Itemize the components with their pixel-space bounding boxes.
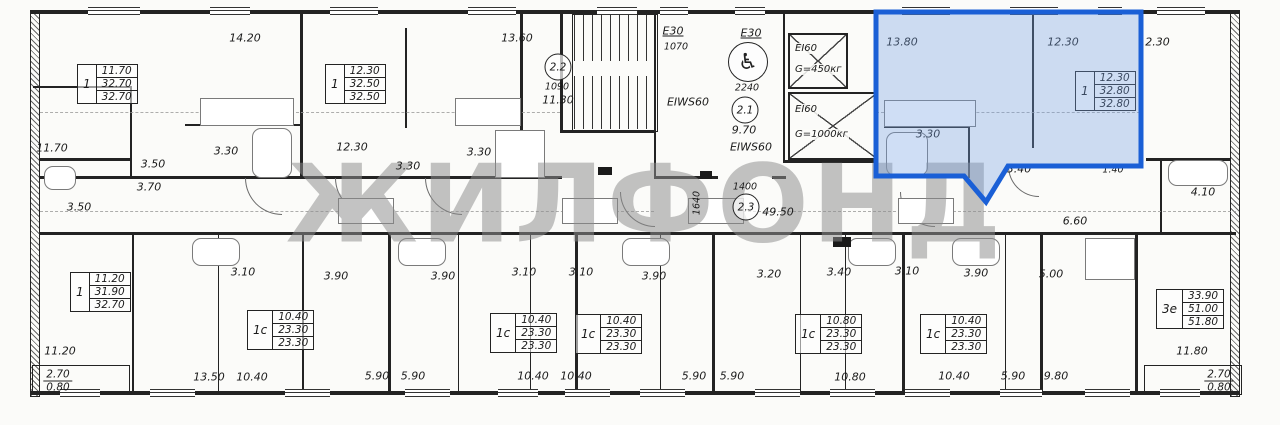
window-mark: [210, 7, 250, 15]
dim-label: 5.90: [682, 370, 707, 383]
unit-type: 1с: [921, 315, 946, 353]
unit-area-value: 10.80: [821, 315, 861, 327]
unit-areas: 10.4023.3023.30: [273, 311, 313, 349]
unit-area-value: 32.70: [90, 298, 130, 311]
unit-type: 3е: [1157, 290, 1183, 328]
kitchen-fixture: [1085, 238, 1135, 280]
dim-label: 10.40: [236, 371, 268, 384]
dim-label: 5.90: [401, 370, 426, 383]
door-rating-label: EIWS60: [730, 141, 772, 154]
unit-area-value: 23.30: [946, 340, 986, 353]
balcony-area-label: 2.700.80: [1204, 369, 1233, 394]
unit-info-box: 1с10.4023.3023.30: [247, 310, 314, 350]
door-rating-label: E30: [741, 27, 762, 40]
kitchen-fixture: [200, 98, 294, 126]
unit-area-value: 32.70: [97, 90, 137, 103]
stair-flight: [574, 15, 654, 61]
window-mark: [735, 7, 765, 15]
unit-area-value: 10.40: [601, 315, 641, 327]
elevator-rating: EI60: [794, 43, 818, 54]
room-area-label: 9.70: [732, 124, 757, 137]
section-marker: 2.1: [732, 97, 759, 124]
floor-plan: ЖИЛФОНД 14.2013.60109011.30E301070E30224…: [0, 0, 1280, 425]
unit-info-box: 1с10.4023.3023.30: [575, 314, 642, 354]
dim-label: 10.40: [560, 370, 592, 383]
balcony-area-top: 2.70: [43, 369, 72, 381]
dim-label: 3.90: [642, 270, 667, 283]
unit-area-value: 23.30: [273, 336, 313, 349]
balcony-area-label: 2.700.80: [43, 369, 72, 394]
unit-areas: 33.9051.0051.80: [1183, 290, 1223, 328]
window-mark: [640, 389, 685, 397]
dim-label: 3.90: [431, 270, 456, 283]
wall: [783, 13, 785, 163]
dim-label: 3.20: [757, 268, 782, 281]
wall: [30, 391, 1240, 395]
unit-area-value: 31.90: [90, 285, 130, 298]
dim-label: 3.50: [67, 201, 92, 214]
window-mark: [1000, 389, 1042, 397]
dim-label: 3.50: [141, 158, 166, 171]
door-arc: [245, 178, 282, 215]
window-mark: [88, 7, 140, 15]
unit-type: 1с: [576, 315, 601, 353]
unit-area-value: 10.40: [516, 314, 556, 326]
unit-areas: 11.7032.7032.70: [97, 65, 137, 103]
room-area-label: 49.50: [762, 206, 794, 219]
room-area-label: 11.80: [1176, 345, 1208, 358]
dim-label: 3.10: [895, 265, 920, 278]
dim-label: 3.30: [396, 160, 421, 173]
dim-label: 5.90: [720, 370, 745, 383]
window-mark: [1085, 389, 1130, 397]
unit-area-value: 51.80: [1183, 315, 1223, 328]
dim-label: 3.10: [512, 266, 537, 279]
unit-info-box: 111.2031.9032.70: [70, 272, 131, 312]
unit-area-value: 23.30: [821, 327, 861, 340]
unit-type: 1: [326, 65, 345, 103]
unit-type: 1: [78, 65, 97, 103]
wall: [132, 235, 134, 391]
unit-area-value: 32.50: [345, 90, 385, 103]
room-area-label: 11.70: [36, 142, 68, 155]
dim-label: 3.10: [569, 266, 594, 279]
window-mark: [565, 389, 610, 397]
kitchen-fixture: [455, 98, 521, 126]
wall: [1040, 235, 1043, 391]
outer-wall: [1230, 10, 1240, 397]
window-mark: [150, 389, 195, 397]
dim-label: 5.90: [365, 370, 390, 383]
window-mark: [1160, 389, 1200, 397]
bathtub-fixture: [44, 166, 76, 190]
dim-label: 3.90: [324, 270, 349, 283]
window-mark: [405, 389, 450, 397]
room-area-label: 11.20: [44, 345, 76, 358]
unit-area-value: 10.40: [273, 311, 313, 323]
unit-area-value: 12.30: [345, 65, 385, 77]
dim-label: 3.40: [827, 266, 852, 279]
balcony-area-bottom: 0.80: [43, 381, 72, 394]
unit-areas: 10.8023.3023.30: [821, 315, 861, 353]
window-mark: [468, 7, 516, 15]
unit-areas: 12.3032.5032.50: [345, 65, 385, 103]
unit-area-value: 23.30: [273, 323, 313, 336]
unit-info-box: 1с10.4023.3023.30: [490, 313, 557, 353]
elevator-shaft: EI60G=450кг: [788, 33, 848, 89]
unit-areas: 10.4023.3023.30: [516, 314, 556, 352]
unit-area-value: 33.90: [1183, 290, 1223, 302]
window-mark: [285, 389, 330, 397]
dim-label: 2240: [735, 83, 759, 94]
dim-label: 5.90: [1001, 370, 1026, 383]
dim-label: 10.80: [834, 371, 866, 384]
dim-label: 1090: [545, 82, 569, 93]
room-area-label: 6.60: [1063, 215, 1088, 228]
bathtub-fixture: [1168, 160, 1228, 186]
balcony-area-top: 2.70: [1204, 369, 1233, 381]
elevator-rating: EI60: [794, 104, 818, 115]
window-mark: [498, 389, 538, 397]
window-mark: [755, 389, 800, 397]
room-area-label: 14.20: [229, 32, 261, 45]
dim-label: 1400: [733, 182, 757, 193]
unit-area-value: 32.70: [97, 77, 137, 90]
unit-info-box: 111.7032.7032.70: [77, 64, 138, 104]
door-rating-label: E30: [663, 25, 684, 38]
unit-area-value: 32.50: [345, 77, 385, 90]
balcony-area-bottom: 0.80: [1204, 381, 1233, 394]
unit-area-value: 23.30: [821, 340, 861, 353]
unit-area-value: 11.20: [90, 273, 130, 285]
dim-label: 1070: [664, 42, 688, 53]
door-rating-label: EIWS60: [667, 96, 709, 109]
section-marker: 2.2: [545, 54, 572, 81]
window-mark: [597, 7, 637, 15]
section-marker: 2.3: [733, 194, 760, 221]
wall: [1160, 160, 1162, 232]
dim-label: 10.40: [938, 370, 970, 383]
wall: [40, 158, 132, 161]
window-mark: [905, 389, 950, 397]
unit-area-value: 10.40: [946, 315, 986, 327]
dim-label: 13.50: [193, 371, 225, 384]
unit-info-box: 1с10.8023.3023.30: [795, 314, 862, 354]
unit-type: 1: [71, 273, 90, 311]
dim-label: 3.10: [231, 266, 256, 279]
unit-area-value: 11.70: [97, 65, 137, 77]
dim-label: 3.90: [964, 267, 989, 280]
unit-area-value: 51.00: [1183, 302, 1223, 315]
bathtub-fixture: [192, 238, 240, 266]
unit-areas: 11.2031.9032.70: [90, 273, 130, 311]
unit-info-box: 3е33.9051.0051.80: [1156, 289, 1224, 329]
unit-areas: 10.4023.3023.30: [946, 315, 986, 353]
dim-label: 3.30: [214, 145, 239, 158]
wall: [405, 28, 407, 128]
dim-label: 1640: [692, 191, 703, 215]
unit-area-value: 23.30: [516, 339, 556, 352]
unit-info-box: 112.3032.5032.50: [325, 64, 386, 104]
unit-type: 1с: [491, 314, 516, 352]
unit-areas: 10.4023.3023.30: [601, 315, 641, 353]
unit-type: 1с: [796, 315, 821, 353]
dim-label: 3.70: [137, 181, 162, 194]
window-mark: [1157, 7, 1205, 15]
room-area-label: 4.10: [1191, 186, 1216, 199]
wall: [1005, 235, 1006, 391]
unit-area-value: 23.30: [516, 326, 556, 339]
room-area-label: 13.60: [501, 32, 533, 45]
unit-type: 1с: [248, 311, 273, 349]
wheelchair-icon: ♿: [728, 42, 768, 82]
room-area-label: 5.00: [1039, 268, 1064, 281]
dim-label: 9.80: [1044, 370, 1069, 383]
stair-flight: [574, 76, 654, 129]
elevator-shaft: EI60G=1000кг: [788, 92, 878, 160]
room-area-label: 11.30: [542, 94, 574, 107]
outer-wall: [30, 10, 40, 397]
unit-area-value: 23.30: [946, 327, 986, 340]
dim-label: 3.30: [467, 146, 492, 159]
wall: [1135, 235, 1138, 391]
room-area-label: 12.30: [336, 141, 368, 154]
window-mark: [330, 7, 378, 15]
unit-info-box: 1с10.4023.3023.30: [920, 314, 987, 354]
window-mark: [660, 7, 688, 15]
elevator-capacity: G=450кг: [794, 64, 843, 75]
unit-area-value: 23.30: [601, 340, 641, 353]
window-mark: [830, 389, 875, 397]
elevator-capacity: G=1000кг: [794, 129, 849, 140]
unit-area-value: 23.30: [601, 327, 641, 340]
dim-label: 10.40: [517, 370, 549, 383]
